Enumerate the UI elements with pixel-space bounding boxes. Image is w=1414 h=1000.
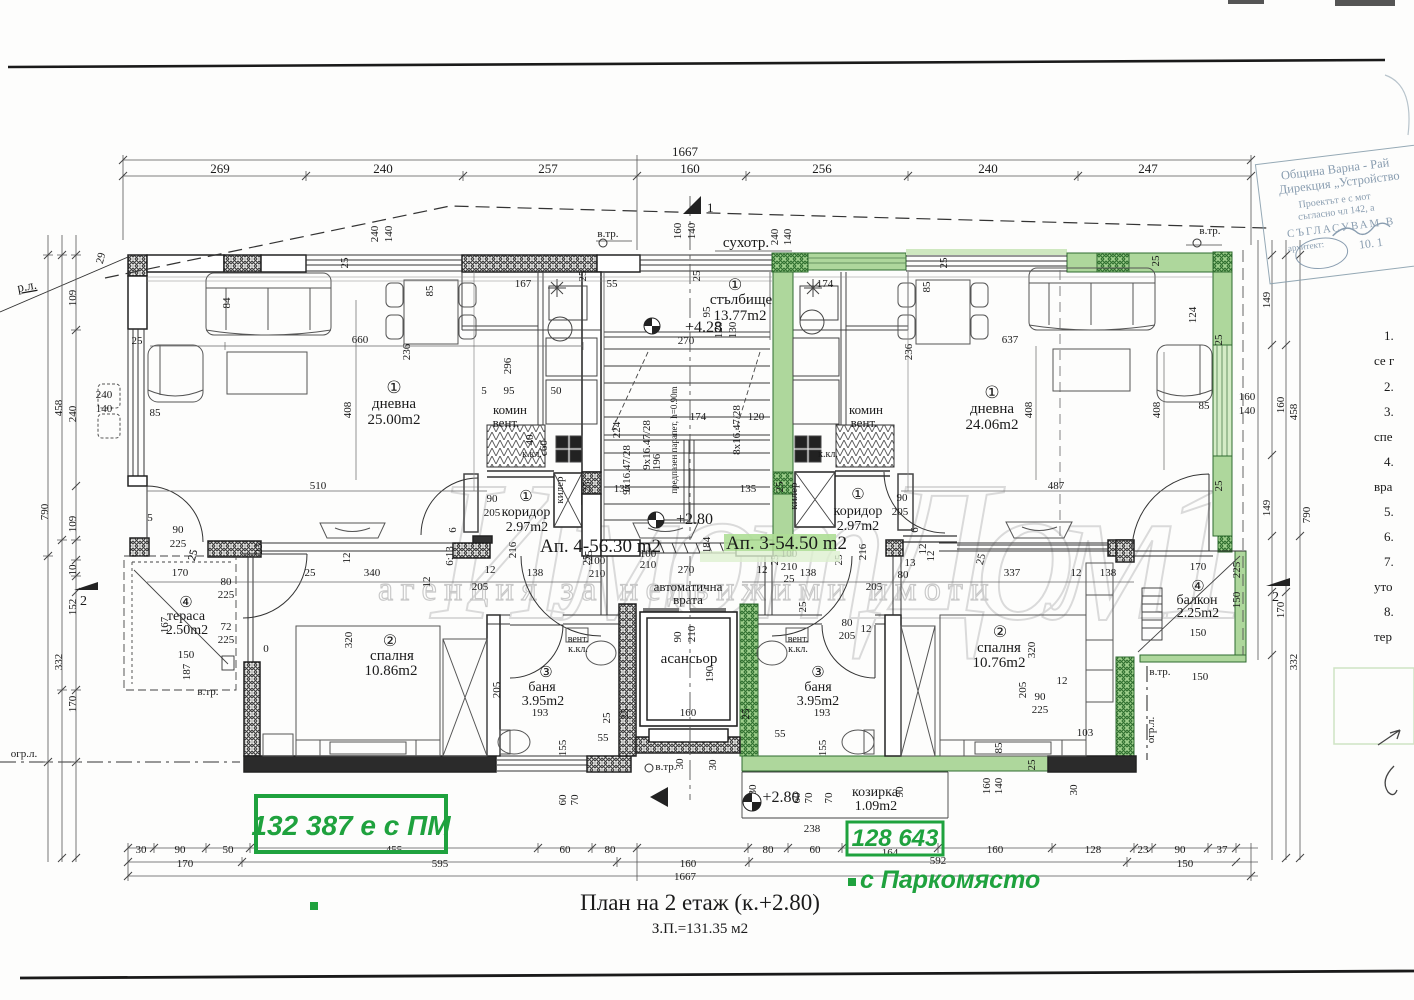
svg-text:①: ① (519, 489, 532, 505)
svg-text:6: 6 (447, 527, 459, 533)
svg-text:205: 205 (484, 507, 501, 519)
svg-text:55: 55 (598, 732, 610, 744)
svg-text:120: 120 (713, 321, 725, 338)
svg-text:5: 5 (147, 512, 153, 524)
svg-text:③: ③ (539, 665, 552, 681)
svg-text:1.09m2: 1.09m2 (855, 799, 897, 814)
svg-text:135: 135 (740, 483, 757, 495)
svg-text:90: 90 (672, 631, 684, 643)
svg-text:13: 13 (905, 557, 917, 569)
svg-text:187: 187 (181, 663, 193, 680)
svg-text:210: 210 (781, 561, 798, 573)
svg-text:224: 224 (611, 421, 623, 438)
svg-text:60: 60 (791, 792, 803, 804)
svg-text:240: 240 (978, 161, 998, 176)
svg-text:З.П.=131.35 м2: З.П.=131.35 м2 (652, 921, 748, 937)
svg-text:10: 10 (67, 564, 79, 576)
svg-text:120: 120 (748, 411, 765, 423)
svg-text:193: 193 (814, 707, 831, 719)
svg-text:170: 170 (177, 858, 194, 870)
svg-text:150: 150 (1192, 671, 1209, 683)
svg-text:236: 236 (401, 343, 413, 360)
svg-text:7.: 7. (1384, 554, 1394, 569)
svg-text:138: 138 (1100, 567, 1117, 579)
svg-text:225: 225 (218, 634, 235, 646)
svg-text:уто: уто (1374, 579, 1393, 594)
svg-text:210: 210 (640, 559, 657, 571)
svg-text:25: 25 (1213, 334, 1225, 346)
svg-text:5: 5 (481, 385, 487, 397)
svg-text:в.тр.: в.тр. (655, 761, 676, 773)
svg-text:дневна: дневна (372, 396, 416, 412)
svg-text:196: 196 (651, 453, 663, 470)
svg-text:320: 320 (1026, 641, 1038, 658)
svg-text:2: 2 (1272, 590, 1279, 605)
svg-text:12: 12 (1071, 567, 1082, 579)
svg-text:85: 85 (993, 742, 1005, 754)
svg-text:167: 167 (159, 616, 171, 633)
svg-text:72: 72 (221, 621, 232, 633)
svg-text:1.: 1. (1384, 328, 1394, 343)
svg-text:135: 135 (614, 483, 631, 495)
svg-text:баня: баня (804, 680, 832, 695)
svg-text:3.: 3. (1384, 404, 1394, 419)
svg-text:12: 12 (421, 577, 433, 588)
svg-text:155: 155 (817, 739, 829, 756)
svg-text:236: 236 (903, 343, 915, 360)
svg-text:2.: 2. (1384, 379, 1394, 394)
svg-text:95: 95 (504, 385, 516, 397)
svg-text:огр.л.: огр.л. (1145, 717, 1157, 744)
svg-text:25: 25 (774, 481, 786, 493)
svg-text:55: 55 (775, 728, 787, 740)
svg-text:240: 240 (67, 405, 79, 422)
svg-text:сухотр.: сухотр. (723, 235, 769, 251)
svg-text:140: 140 (1239, 405, 1256, 417)
svg-text:225: 225 (170, 538, 187, 550)
svg-text:25.00m2: 25.00m2 (368, 412, 421, 428)
svg-text:216: 216 (507, 541, 519, 558)
svg-text:340: 340 (364, 567, 381, 579)
svg-text:140: 140 (782, 228, 794, 245)
svg-text:25: 25 (1213, 480, 1225, 492)
svg-text:с Паркомясто: с Паркомясто (860, 866, 1040, 894)
svg-text:к.кл.: к.кл. (818, 449, 838, 460)
svg-text:637: 637 (1002, 334, 1019, 346)
svg-text:174: 174 (690, 411, 707, 423)
svg-text:109: 109 (67, 289, 79, 306)
svg-text:25: 25 (784, 573, 796, 585)
svg-text:84: 84 (221, 297, 233, 309)
svg-text:240: 240 (369, 225, 381, 242)
svg-text:②: ② (993, 624, 1007, 641)
svg-text:12: 12 (757, 564, 768, 576)
svg-text:баня: баня (528, 680, 556, 695)
svg-text:30: 30 (707, 759, 719, 771)
svg-text:2.25m2: 2.25m2 (1177, 606, 1219, 621)
svg-text:спалня: спалня (370, 648, 414, 664)
svg-text:160: 160 (680, 858, 697, 870)
svg-text:80: 80 (763, 844, 775, 856)
svg-text:25: 25 (305, 567, 317, 579)
svg-text:в.тр.: в.тр. (1199, 225, 1220, 237)
svg-text:6:13: 6:13 (444, 546, 456, 566)
svg-text:25: 25 (601, 712, 613, 724)
svg-text:790: 790 (1301, 506, 1313, 523)
svg-text:10.86m2: 10.86m2 (365, 663, 418, 679)
svg-text:160: 160 (672, 222, 684, 239)
svg-text:1: 1 (707, 200, 714, 215)
svg-text:90: 90 (173, 524, 185, 536)
svg-text:вент.: вент. (493, 415, 520, 430)
svg-text:790: 790 (39, 503, 51, 520)
svg-text:193: 193 (532, 707, 549, 719)
svg-text:296: 296 (502, 357, 514, 374)
svg-text:с60: с60 (538, 440, 550, 456)
svg-text:140: 140 (686, 222, 698, 239)
svg-text:55: 55 (607, 278, 619, 290)
svg-text:25: 25 (339, 257, 351, 269)
svg-text:269: 269 (210, 161, 230, 176)
svg-text:12: 12 (485, 564, 496, 576)
svg-text:160: 160 (680, 161, 700, 176)
svg-text:225: 225 (1231, 561, 1243, 578)
svg-text:60: 60 (557, 794, 569, 806)
svg-text:90: 90 (1175, 844, 1187, 856)
svg-text:вра: вра (1374, 479, 1393, 494)
svg-text:килер: килер (554, 476, 566, 504)
svg-text:①: ① (386, 378, 401, 397)
svg-text:огр.л.: огр.л. (11, 748, 38, 760)
svg-text:270: 270 (678, 564, 695, 576)
svg-text:109: 109 (67, 515, 79, 532)
svg-text:240: 240 (96, 389, 113, 401)
svg-text:90: 90 (897, 492, 909, 504)
svg-text:170: 170 (1190, 561, 1207, 573)
svg-text:138: 138 (527, 567, 544, 579)
svg-text:124: 124 (1187, 306, 1199, 323)
svg-text:в.тр.: в.тр. (1149, 666, 1170, 678)
svg-text:150: 150 (1177, 858, 1194, 870)
svg-text:стълбище: стълбище (710, 292, 773, 308)
svg-text:408: 408 (342, 401, 354, 418)
svg-text:160: 160 (1239, 391, 1256, 403)
svg-text:140: 140 (96, 403, 113, 415)
svg-text:2.97m2: 2.97m2 (837, 519, 879, 534)
svg-text:спе: спе (1374, 429, 1393, 444)
svg-text:2.97m2: 2.97m2 (506, 520, 548, 535)
svg-text:25: 25 (132, 335, 144, 347)
svg-text:25: 25 (691, 270, 703, 282)
svg-text:132 387 е с ПМ: 132 387 е с ПМ (251, 810, 451, 841)
svg-text:174: 174 (817, 278, 834, 290)
svg-text:90: 90 (894, 786, 906, 798)
svg-text:70: 70 (803, 792, 815, 804)
svg-text:332: 332 (53, 654, 65, 671)
svg-text:152: 152 (67, 599, 79, 616)
svg-text:1667: 1667 (672, 144, 699, 159)
svg-text:12: 12 (1057, 675, 1068, 687)
svg-text:килер: килер (788, 482, 800, 510)
svg-text:План на 2 етаж (к.+2.80): План на 2 етаж (к.+2.80) (580, 890, 820, 915)
svg-text:2.50m2: 2.50m2 (166, 623, 208, 638)
svg-text:138: 138 (800, 567, 817, 579)
svg-text:спалня: спалня (977, 640, 1021, 656)
svg-text:в.тр.: в.тр. (197, 686, 218, 698)
svg-text:225: 225 (218, 589, 235, 601)
svg-text:149: 149 (1261, 499, 1273, 516)
svg-text:25: 25 (1026, 759, 1038, 771)
svg-text:270: 270 (678, 335, 695, 347)
svg-text:103: 103 (1077, 727, 1094, 739)
svg-text:①: ① (851, 487, 864, 503)
svg-text:85: 85 (921, 281, 933, 293)
svg-text:6.: 6. (1384, 529, 1394, 544)
svg-text:4.: 4. (1384, 454, 1394, 469)
svg-text:150: 150 (178, 649, 195, 661)
svg-text:6: 6 (909, 527, 921, 533)
svg-text:предпазен парапет, h=0.90m: предпазен парапет, h=0.90m (669, 386, 679, 493)
svg-text:25: 25 (938, 257, 950, 269)
svg-text:90: 90 (487, 493, 499, 505)
svg-text:80: 80 (842, 617, 854, 629)
svg-text:160: 160 (987, 844, 1004, 856)
svg-text:160: 160 (680, 707, 697, 719)
svg-text:к.кл.: к.кл. (788, 644, 808, 655)
svg-text:10.76m2: 10.76m2 (973, 655, 1026, 671)
svg-text:205: 205 (839, 630, 856, 642)
svg-text:25: 25 (581, 481, 593, 493)
svg-text:12: 12 (341, 553, 353, 564)
svg-text:160: 160 (1275, 396, 1287, 413)
svg-text:дневна: дневна (970, 401, 1014, 417)
svg-text:в.тр.: в.тр. (597, 228, 618, 240)
svg-text:320: 320 (343, 631, 355, 648)
svg-text:се г: се г (1374, 353, 1394, 368)
svg-text:660: 660 (352, 334, 369, 346)
svg-text:25: 25 (740, 708, 752, 720)
svg-text:190: 190 (704, 665, 716, 682)
svg-text:160: 160 (981, 777, 993, 794)
svg-text:150: 150 (1190, 627, 1207, 639)
svg-text:25: 25 (797, 601, 809, 613)
svg-text:вент.: вент. (851, 415, 878, 430)
svg-text:80: 80 (605, 844, 617, 856)
svg-text:коридор: коридор (834, 504, 883, 519)
svg-text:30: 30 (1068, 784, 1080, 796)
svg-text:①: ① (984, 383, 999, 402)
svg-text:врата: врата (673, 592, 703, 607)
svg-text:205: 205 (866, 581, 883, 593)
svg-text:10. 1: 10. 1 (1358, 235, 1384, 252)
svg-text:5.: 5. (1384, 504, 1394, 519)
svg-text:тер: тер (1374, 629, 1392, 644)
svg-text:80: 80 (221, 576, 233, 588)
svg-text:150: 150 (1231, 591, 1243, 608)
svg-text:130: 130 (727, 321, 739, 338)
svg-text:50: 50 (551, 385, 563, 397)
svg-text:8x16.47/28: 8x16.47/28 (731, 405, 743, 455)
svg-text:12: 12 (917, 544, 929, 555)
svg-text:205: 205 (472, 581, 489, 593)
svg-text:149: 149 (1261, 291, 1273, 308)
svg-text:+2.80: +2.80 (676, 511, 713, 528)
svg-text:408: 408 (1151, 401, 1163, 418)
svg-text:595: 595 (432, 858, 449, 870)
svg-text:210: 210 (686, 625, 698, 642)
svg-text:155: 155 (557, 739, 569, 756)
svg-text:100: 100 (589, 555, 606, 567)
svg-text:210: 210 (589, 568, 606, 580)
svg-text:25: 25 (577, 270, 589, 282)
svg-text:408: 408 (1023, 401, 1035, 418)
svg-text:140: 140 (993, 777, 1005, 794)
svg-text:0: 0 (263, 643, 269, 655)
svg-text:25: 25 (619, 708, 631, 720)
svg-text:256: 256 (812, 161, 832, 176)
svg-text:140: 140 (383, 225, 395, 242)
svg-text:458: 458 (53, 399, 65, 416)
svg-text:60: 60 (810, 844, 822, 856)
svg-text:167: 167 (515, 278, 532, 290)
svg-text:170: 170 (172, 567, 189, 579)
svg-text:асансьор: асансьор (661, 651, 718, 667)
svg-text:1667: 1667 (674, 871, 697, 883)
svg-text:тераса: тераса (167, 609, 206, 624)
svg-text:③: ③ (811, 665, 824, 681)
svg-text:70: 70 (823, 792, 835, 804)
svg-text:25: 25 (1150, 255, 1162, 267)
svg-text:85: 85 (150, 407, 162, 419)
svg-text:30: 30 (136, 844, 148, 856)
svg-text:к.кл.: к.кл. (568, 644, 588, 655)
svg-text:247: 247 (1138, 161, 1158, 176)
svg-text:37: 37 (1217, 844, 1229, 856)
svg-text:337: 337 (1004, 567, 1021, 579)
svg-text:128: 128 (1085, 844, 1102, 856)
svg-text:40: 40 (524, 434, 536, 446)
svg-text:487: 487 (1048, 480, 1065, 492)
svg-text:Ап. 3-54.50 m2: Ап. 3-54.50 m2 (726, 533, 847, 554)
svg-text:240: 240 (373, 161, 393, 176)
svg-text:510: 510 (310, 480, 327, 492)
svg-text:23: 23 (1138, 844, 1150, 856)
svg-text:238: 238 (804, 823, 821, 835)
svg-text:216: 216 (857, 543, 869, 560)
svg-text:90: 90 (175, 844, 187, 856)
svg-text:332: 332 (1288, 654, 1300, 671)
svg-text:90: 90 (1035, 691, 1047, 703)
svg-text:240: 240 (769, 228, 781, 245)
svg-text:257: 257 (538, 161, 558, 176)
svg-text:184: 184 (701, 536, 713, 553)
svg-text:95: 95 (701, 306, 713, 318)
svg-text:80: 80 (898, 569, 910, 581)
svg-text:60: 60 (560, 844, 572, 856)
svg-text:458: 458 (1288, 403, 1300, 420)
svg-text:8.: 8. (1384, 604, 1394, 619)
svg-text:70: 70 (569, 794, 581, 806)
svg-text:козирка: козирка (852, 785, 899, 800)
svg-text:23: 23 (253, 543, 265, 555)
svg-text:205: 205 (892, 506, 909, 518)
svg-text:12: 12 (861, 623, 872, 635)
svg-text:24.06m2: 24.06m2 (966, 417, 1019, 433)
svg-text:170: 170 (67, 695, 79, 712)
svg-text:128 643: 128 643 (852, 825, 939, 852)
svg-text:коридор: коридор (502, 505, 551, 520)
svg-text:85: 85 (424, 285, 436, 297)
svg-text:205: 205 (491, 681, 503, 698)
svg-text:50: 50 (223, 844, 235, 856)
svg-text:85: 85 (1199, 400, 1211, 412)
svg-text:2: 2 (80, 594, 87, 609)
svg-text:225: 225 (1032, 704, 1049, 716)
svg-text:205: 205 (1017, 681, 1029, 698)
